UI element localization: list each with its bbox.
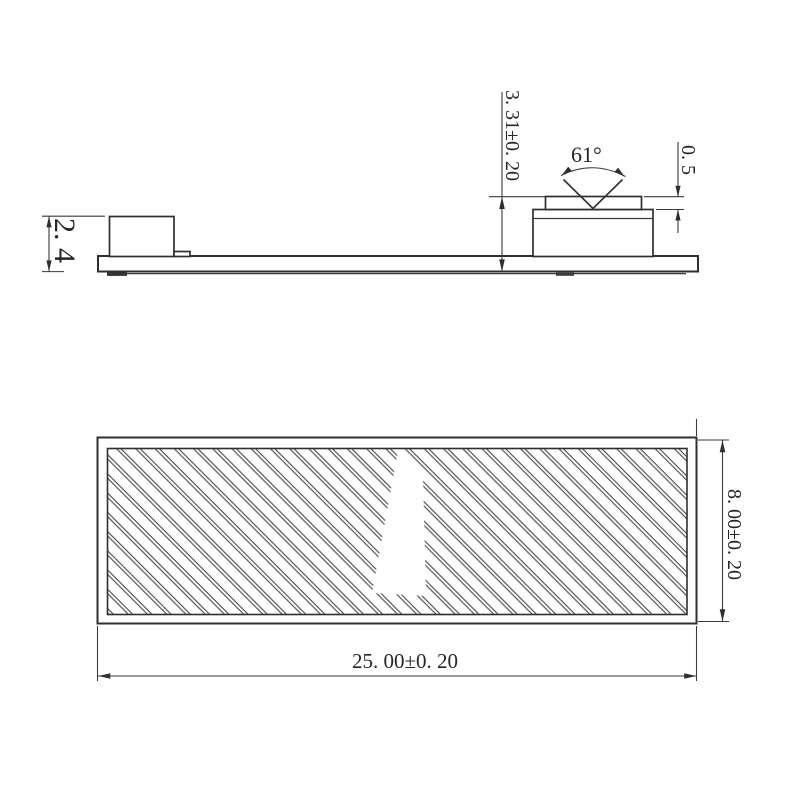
bottom-view: 8. 00±0. 20 25. 00±0. 20 <box>98 419 746 681</box>
dim-arrow-cap-top <box>675 186 680 197</box>
solder-pad-left <box>107 272 127 276</box>
dim-length-text: 25. 00±0. 20 <box>352 649 458 673</box>
drawing-canvas: 61° 3. 31±0. 20 0. 5 2. 4 <box>0 0 800 800</box>
dim-arrow-up <box>499 197 505 209</box>
dim-arrow-cap-bottom <box>675 210 680 221</box>
dim-left-height-text: 2. 4 <box>48 218 81 263</box>
shield-can <box>533 210 653 257</box>
angle-arrow-left <box>560 167 572 178</box>
dim-arrow-width-top <box>720 440 726 452</box>
dim-arrow-length-right <box>684 673 696 679</box>
left-component-tab <box>174 252 190 257</box>
dim-component-height-text: 3. 31±0. 20 <box>501 90 523 181</box>
engineering-drawing: 61° 3. 31±0. 20 0. 5 2. 4 <box>0 0 800 800</box>
angle-arrow-right <box>615 168 627 179</box>
dim-arrow-length-left <box>98 673 110 679</box>
side-view: 61° 3. 31±0. 20 0. 5 2. 4 <box>42 90 699 276</box>
dim-notch-angle-text: 61° <box>571 142 602 167</box>
left-component-block <box>110 217 175 257</box>
dim-cap-height-text: 0. 5 <box>677 145 699 175</box>
dim-arrow-width-bottom <box>720 609 726 621</box>
solder-pad-right <box>556 273 574 276</box>
dim-width-text: 8. 00±0. 20 <box>723 489 745 580</box>
pcb-plate-side <box>98 256 698 272</box>
